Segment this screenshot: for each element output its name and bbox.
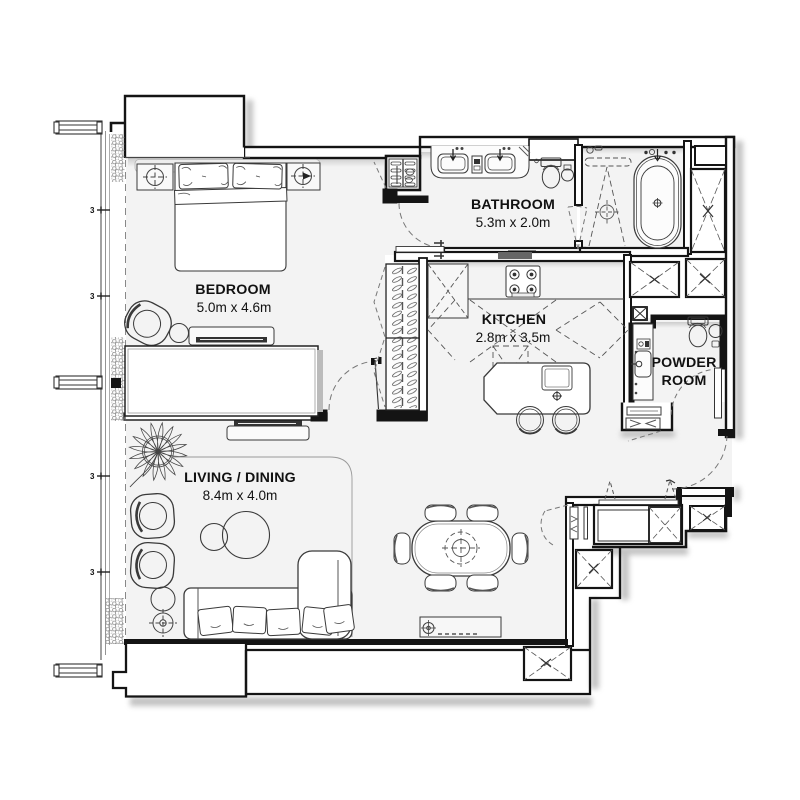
svg-text:5.0m x 4.6m: 5.0m x 4.6m (197, 300, 272, 315)
svg-text:3: 3 (90, 206, 95, 215)
svg-text:POWDER: POWDER (651, 355, 716, 371)
svg-text:3: 3 (90, 292, 95, 301)
svg-text:2.8m x 3.5m: 2.8m x 3.5m (476, 330, 551, 345)
svg-text:BEDROOM: BEDROOM (195, 282, 271, 298)
svg-text:BATHROOM: BATHROOM (471, 197, 555, 213)
svg-text:3: 3 (90, 568, 95, 577)
svg-text:LIVING / DINING: LIVING / DINING (184, 470, 296, 486)
svg-text:3: 3 (90, 472, 95, 481)
svg-text:5.3m x 2.0m: 5.3m x 2.0m (476, 215, 551, 230)
svg-text:ROOM: ROOM (662, 373, 707, 389)
svg-text:KITCHEN: KITCHEN (482, 312, 546, 328)
svg-text:8.4m x 4.0m: 8.4m x 4.0m (203, 488, 278, 503)
